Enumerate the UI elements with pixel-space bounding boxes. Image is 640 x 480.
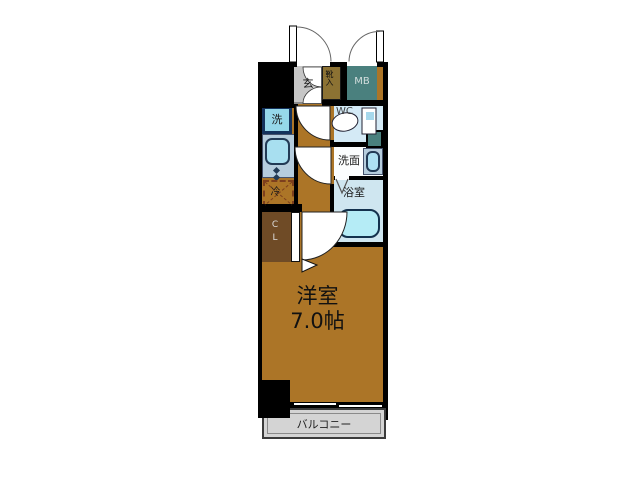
washroom-sink-icon bbox=[366, 151, 380, 172]
closet-door bbox=[291, 212, 300, 262]
entrance-door-arc bbox=[297, 27, 332, 62]
entrance-step-line bbox=[294, 102, 322, 104]
refrigerator-label: 冷 bbox=[263, 188, 288, 198]
mb-door-arc bbox=[349, 31, 380, 61]
floor-plan: 玄 靴入 MB WC 洗 冷 洗面 浴室 CL 洋室 7.0帖 バルコニー bbox=[0, 0, 640, 480]
main-room-size: 7.0帖 bbox=[270, 311, 365, 332]
washroom-label: 洗面 bbox=[335, 155, 363, 166]
meter-box-label: MB bbox=[347, 77, 377, 87]
wall-washer-top bbox=[258, 104, 298, 108]
kitchen-sink-icon bbox=[265, 138, 290, 165]
wall-wc-washroom bbox=[334, 142, 366, 147]
wall-above-closet bbox=[258, 204, 302, 212]
entrance-door-leaf bbox=[290, 26, 297, 62]
pillar-top-left bbox=[258, 62, 294, 106]
bathtub-icon bbox=[338, 209, 380, 238]
closet-label: CL bbox=[270, 220, 279, 246]
entrance-label: 玄 bbox=[294, 78, 322, 89]
window-sash-left bbox=[294, 405, 338, 407]
washer-label: 洗 bbox=[262, 114, 292, 125]
balcony-label: バルコニー bbox=[262, 419, 386, 430]
main-room-name: 洋室 bbox=[270, 286, 365, 307]
bathroom-label: 浴室 bbox=[343, 187, 365, 198]
shoe-cabinet-label: 靴入 bbox=[325, 70, 333, 86]
bath-door-opening bbox=[335, 176, 349, 180]
wc-door-opening bbox=[330, 106, 334, 140]
pillar-bottom-left bbox=[258, 380, 290, 418]
wc-label: WC bbox=[336, 107, 353, 117]
wall-kitchen-hall bbox=[294, 108, 298, 208]
window-mullion bbox=[336, 402, 339, 407]
pipe-space bbox=[366, 130, 383, 148]
mb-door-leaf bbox=[377, 31, 384, 62]
wall-right bbox=[383, 62, 388, 408]
wall-bath-bottom bbox=[330, 242, 388, 247]
window-sash-right bbox=[338, 403, 382, 405]
